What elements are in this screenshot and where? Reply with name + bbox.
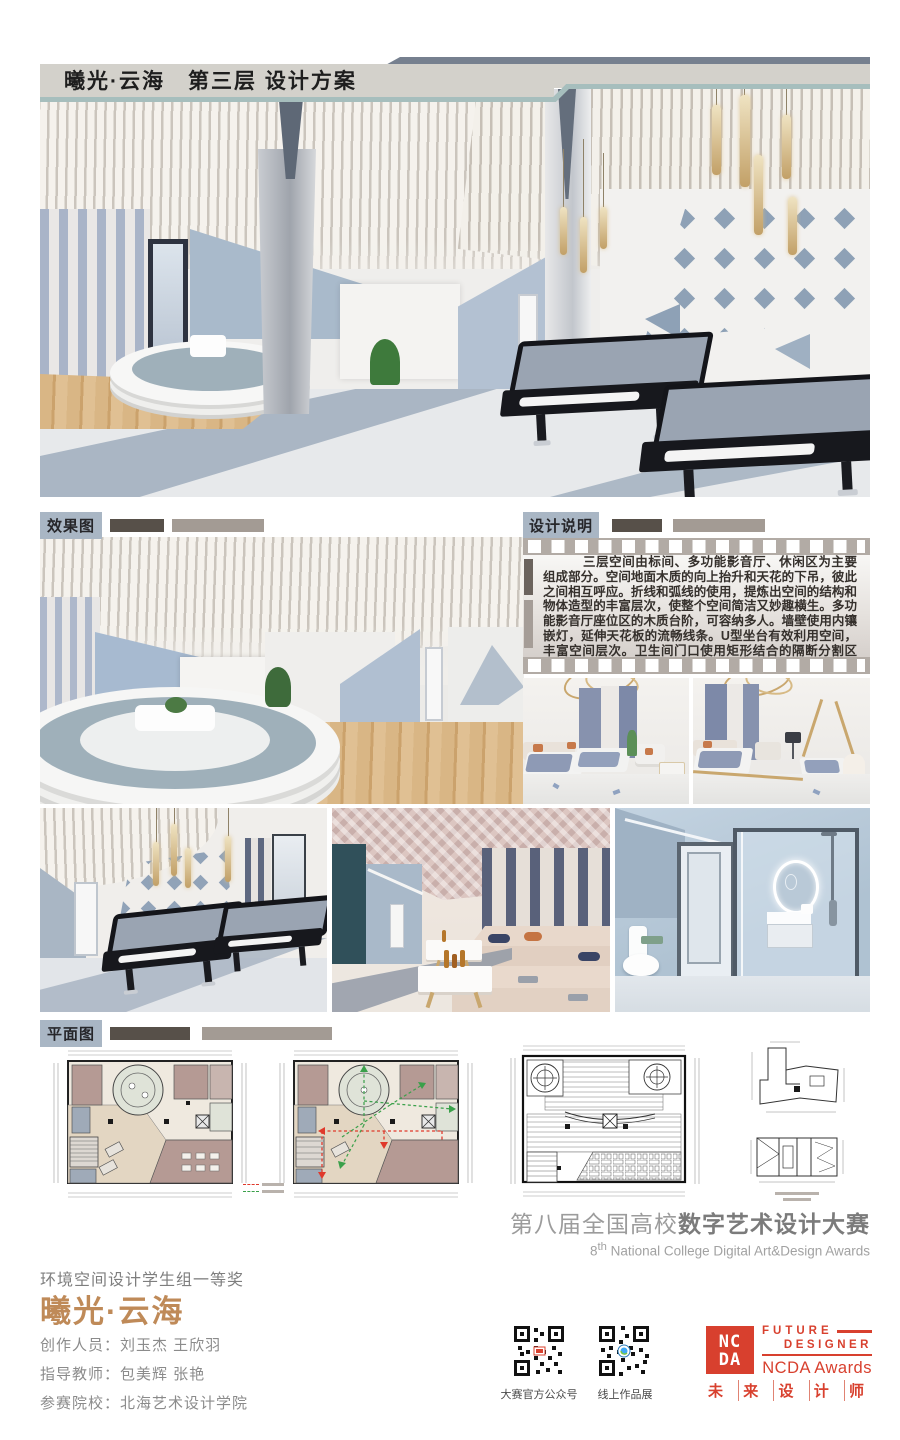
bathroom-towel bbox=[801, 904, 813, 914]
decor-bar bbox=[110, 519, 164, 532]
bathroom-plant bbox=[641, 936, 663, 944]
desc-side-bar-light bbox=[524, 600, 533, 648]
page-title: 曦光·云海 第三层 设计方案 bbox=[64, 65, 357, 95]
floor-plan-circulation bbox=[272, 1045, 480, 1203]
design-description-panel: 三层空间由标间、多功能影音厅、休闲区为主要组成部分。空间地面木质的向上抬升和天花… bbox=[523, 538, 870, 674]
section-label-description: 设计说明 bbox=[523, 512, 599, 539]
credit-school: 参赛院校：北海艺术设计学院 bbox=[40, 1392, 248, 1413]
hero-column-left bbox=[258, 149, 316, 414]
hero-pool-table-2 bbox=[627, 371, 870, 497]
design-description-text: 三层空间由标间、多功能影音厅、休闲区为主要组成部分。空间地面木质的向上抬升和天花… bbox=[543, 555, 857, 673]
section-label-plans: 平面图 bbox=[40, 1020, 102, 1047]
designer-label: DESIGNER bbox=[762, 1339, 872, 1351]
hero-pendant-light bbox=[788, 197, 797, 255]
hero-pendant-light bbox=[580, 217, 587, 273]
ncda-logo-icon: NC DA bbox=[706, 1326, 754, 1374]
decor-bar bbox=[110, 1027, 190, 1040]
floor-plan-furniture bbox=[46, 1045, 254, 1203]
section-label-renders: 效果图 bbox=[40, 512, 102, 539]
bedroom1-accent-pillow bbox=[533, 744, 543, 752]
header-teal-line-left bbox=[40, 97, 554, 102]
hero-render-lobby bbox=[40, 89, 870, 497]
decor-bar bbox=[673, 519, 765, 532]
bathroom-toilet-bowl bbox=[623, 954, 659, 976]
svg-text:NC: NC bbox=[719, 1332, 741, 1352]
billiards-pendant bbox=[153, 842, 159, 886]
competition-title-en: 8th National College Digital Art&Design … bbox=[510, 1241, 870, 1259]
decor-bar bbox=[172, 519, 264, 532]
bathroom-vanity-cabinet bbox=[767, 924, 813, 948]
media-door bbox=[390, 904, 404, 948]
ceiling-plan bbox=[505, 1040, 705, 1204]
hero-pendant-light bbox=[754, 155, 763, 235]
render-lounge-circular bbox=[40, 537, 524, 804]
bedroom1-plant bbox=[627, 730, 637, 756]
media-screen-panel bbox=[332, 844, 366, 974]
bedroom1-floor bbox=[523, 774, 689, 804]
billiards-table-2 bbox=[207, 894, 327, 985]
render-bedroom-2 bbox=[693, 678, 870, 804]
qr-code-official-account bbox=[512, 1324, 566, 1378]
media-bolster-orange bbox=[524, 932, 542, 941]
poster-root: 曦光·云海 第三层 设计方案 bbox=[0, 0, 900, 1440]
hero-plant bbox=[370, 339, 400, 385]
elevation-drawing-2 bbox=[745, 1128, 847, 1186]
render-bedroom-1 bbox=[523, 678, 689, 804]
hero-pendant-light bbox=[600, 207, 607, 249]
future-label: FUTURE bbox=[762, 1325, 833, 1337]
elevation-caption bbox=[775, 1192, 819, 1201]
desc-side-bar-dark bbox=[524, 559, 533, 595]
future-designer-motto: 未 来 设 计 师 bbox=[704, 1380, 868, 1401]
bathroom-floor bbox=[615, 976, 870, 1012]
header-teal-line-right bbox=[568, 84, 870, 89]
billiards-pendant bbox=[185, 848, 191, 888]
hero-platform-seat bbox=[190, 335, 226, 357]
media-bolster-navy bbox=[488, 934, 510, 943]
render-billiards-room bbox=[40, 808, 327, 1012]
credit-advisors: 指导教师：包美辉 张艳 bbox=[40, 1363, 205, 1384]
competition-title-cn: 第八届全国高校数字艺术设计大赛 bbox=[510, 1205, 870, 1239]
lounge-door bbox=[425, 647, 443, 721]
qr-label-online-exhibition: 线上作品展 bbox=[585, 1386, 665, 1402]
render-media-room bbox=[332, 808, 610, 1012]
competition-title-block: 第八届全国高校数字艺术设计大赛 8th National College Dig… bbox=[510, 1205, 870, 1259]
bedroom1-curtain bbox=[579, 688, 601, 754]
render-bathroom bbox=[615, 808, 870, 1012]
hero-pendant-light bbox=[560, 207, 567, 255]
bedroom1-duvet bbox=[525, 754, 573, 772]
lounge-tall-plant bbox=[265, 667, 291, 707]
credit-creators: 创作人员：刘玉杰 王欣羽 bbox=[40, 1334, 221, 1355]
billiards-pendant bbox=[225, 836, 231, 882]
elevation-drawing-1 bbox=[740, 1040, 850, 1118]
decor-bar bbox=[612, 519, 662, 532]
filmstrip-bottom bbox=[523, 657, 870, 674]
work-title: 曦光·云海 bbox=[40, 1286, 184, 1331]
hero-pendant-light bbox=[712, 105, 721, 175]
hero-reception-wall bbox=[340, 284, 460, 379]
hero-pendant-light bbox=[740, 95, 750, 187]
future-designer-block: FUTURE DESIGNER NCDA Awards bbox=[762, 1325, 872, 1378]
bedroom2-tv bbox=[785, 732, 801, 743]
billiards-pendant bbox=[171, 824, 177, 876]
media-bottle bbox=[444, 950, 449, 968]
bathroom-shower-column bbox=[831, 834, 834, 904]
qr-code-online-exhibition bbox=[597, 1324, 651, 1378]
bedroom2-table-chairs bbox=[755, 742, 781, 760]
decor-bar bbox=[202, 1027, 332, 1040]
media-coffee-table-front bbox=[418, 966, 492, 992]
svg-text:DA: DA bbox=[719, 1350, 741, 1370]
media-curtain-wall bbox=[482, 848, 610, 938]
qr-label-official-account: 大赛官方公众号 bbox=[494, 1386, 584, 1402]
media-bottle bbox=[442, 930, 446, 942]
filmstrip-top bbox=[523, 538, 870, 555]
hero-pendant-light bbox=[782, 115, 791, 179]
ncda-awards-label: NCDA Awards bbox=[762, 1359, 872, 1378]
lounge-plant bbox=[165, 697, 187, 713]
